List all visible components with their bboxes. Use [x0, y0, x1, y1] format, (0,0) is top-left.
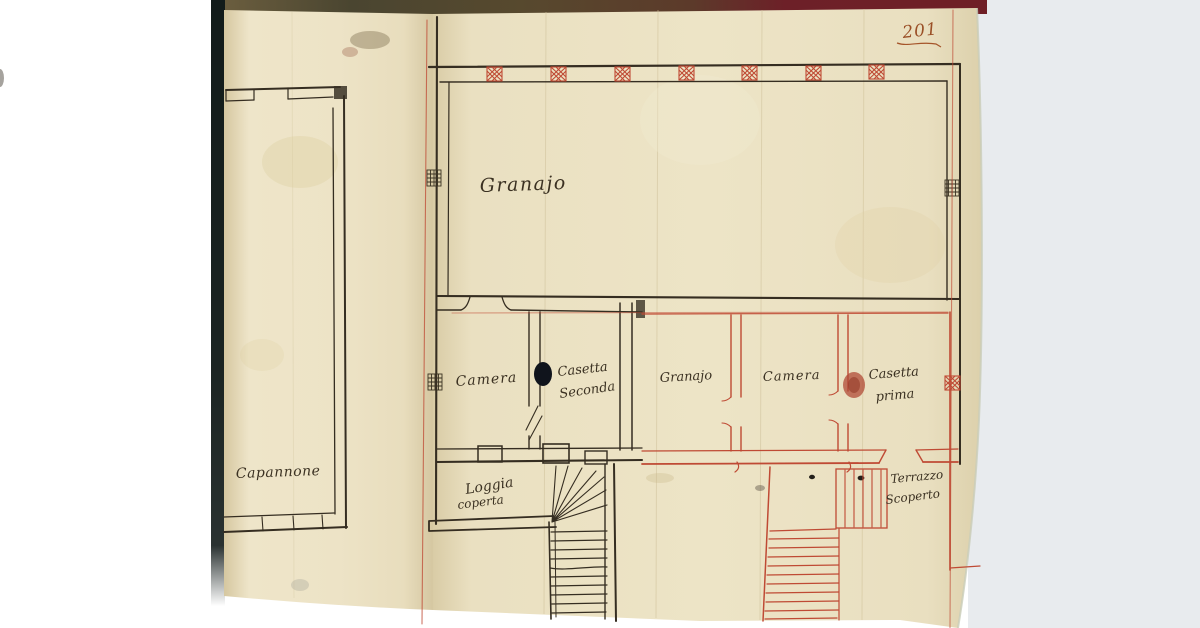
label-granajo-hall: Granajo — [479, 172, 567, 197]
floor-plan-drawing: Granajo Camera Casetta Seconda Granajo C… — [0, 0, 1200, 628]
label-capannone: Capannone — [236, 463, 321, 482]
manuscript-photo: Granajo Camera Casetta Seconda Granajo C… — [0, 0, 1200, 628]
paper-pages — [0, 8, 982, 628]
left-page — [224, 10, 433, 610]
label-camera-east: Camera — [763, 368, 821, 385]
folio-number-text: 201 — [900, 19, 938, 43]
label-granajo-small: Granajo — [659, 368, 712, 386]
